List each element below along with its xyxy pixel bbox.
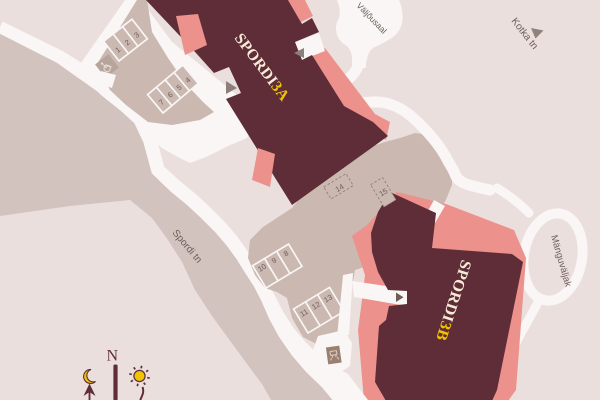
svg-text:N: N (107, 348, 119, 365)
